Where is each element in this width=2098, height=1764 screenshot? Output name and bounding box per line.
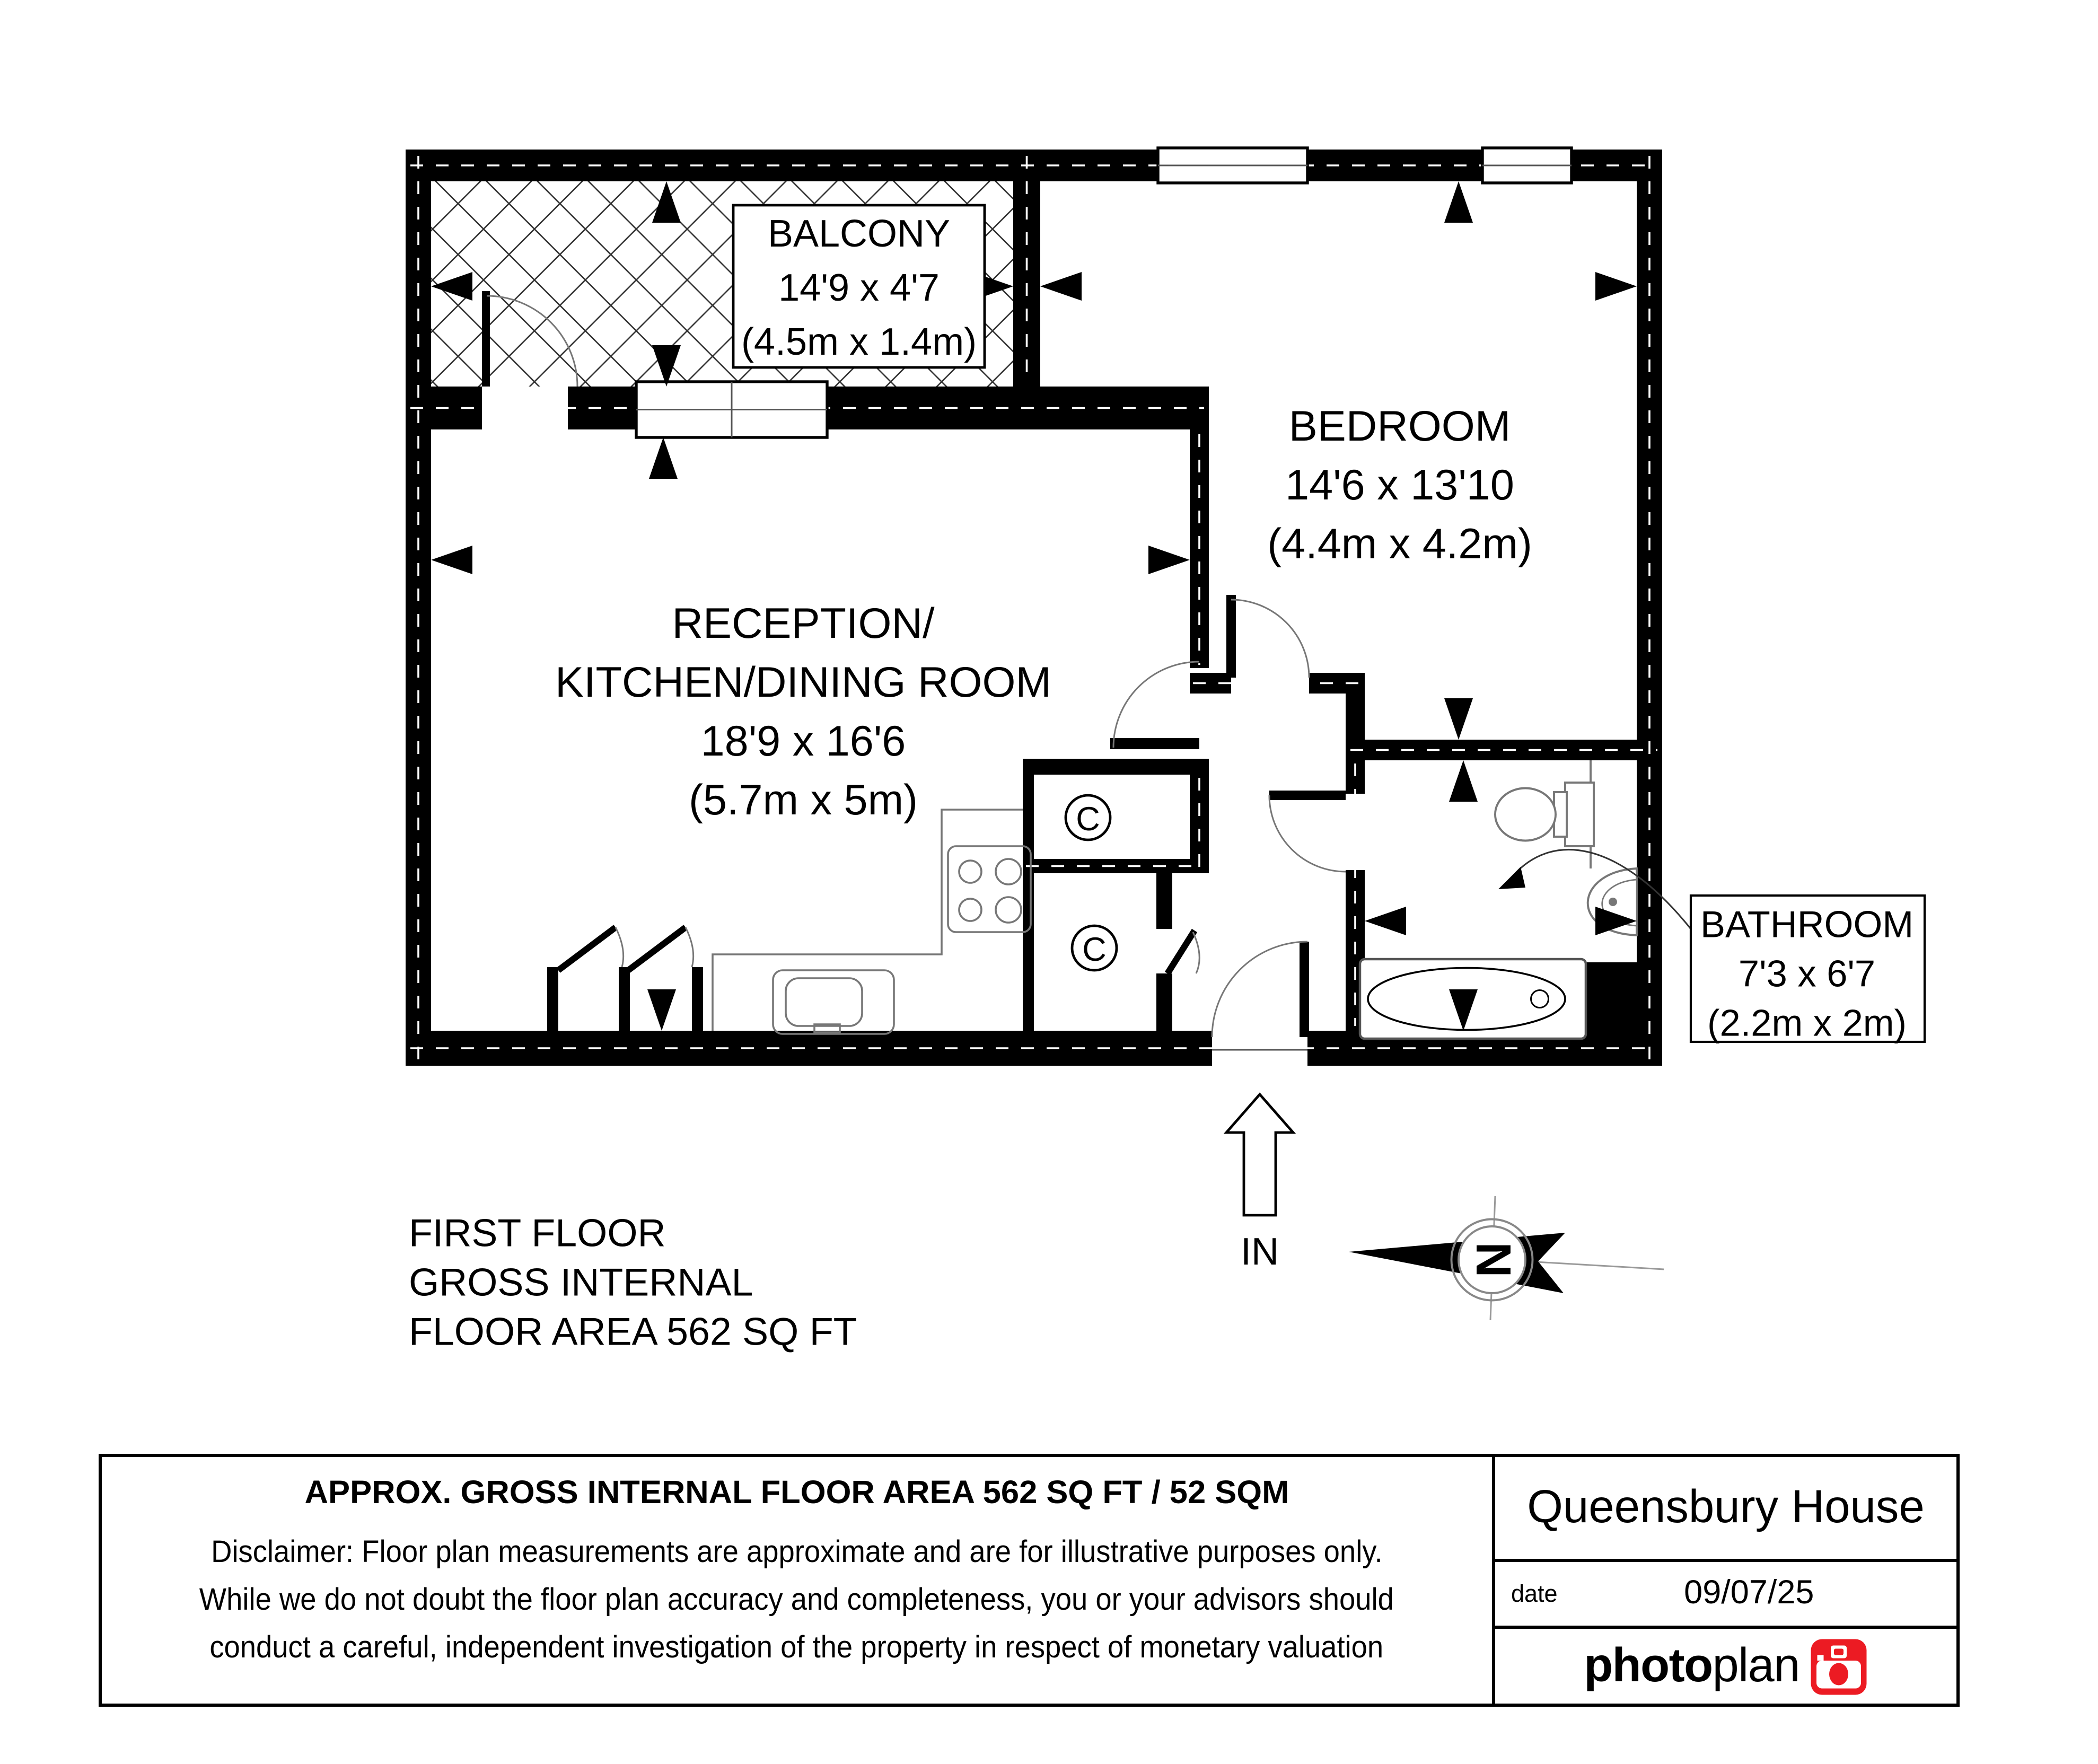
reception-dims: 18'9 x 16'6: [701, 717, 906, 765]
bathroom-corner-boxing: [1583, 962, 1637, 1031]
cupboard-door-arc-2: [686, 927, 694, 967]
entrance-door-leaf: [1300, 942, 1309, 1037]
arrow-reception-right: [1148, 546, 1190, 574]
brand-wordmark: photoplan: [1584, 1639, 1799, 1693]
floor-summary-line1: FIRST FLOOR: [409, 1211, 666, 1255]
closet2-wall-left: [1023, 873, 1034, 1031]
floor-summary: FIRST FLOOR GROSS INTERNAL FLOOR AREA 56…: [409, 1211, 857, 1354]
property-name: Queensbury House: [1527, 1482, 1925, 1534]
cupboard-stub-3: [692, 967, 703, 1031]
cupboard-stub-1: [547, 967, 558, 1031]
bedroom-door-arc: [1231, 600, 1309, 678]
kitchen: [713, 810, 1031, 1034]
toilet-cistern: [1565, 783, 1594, 846]
cupboard-stub-2: [619, 967, 630, 1031]
reception-metric: (5.7m x 5m): [689, 776, 918, 824]
footer-table: APPROX. GROSS INTERNAL FLOOR AREA 562 SQ…: [99, 1454, 1960, 1707]
bathroom-door-leaf: [1269, 791, 1346, 800]
entrance-label: IN: [1241, 1231, 1279, 1273]
disclaimer-line-1: Disclaimer: Floor plan measurements are …: [211, 1529, 1382, 1576]
arrow-bathroom-up: [1449, 760, 1478, 802]
closet2-label: C: [1082, 931, 1107, 968]
bathroom-dims: 7'3 x 6'7: [1739, 953, 1875, 995]
disclaimer-line-3: conduct a careful, independent investiga…: [210, 1624, 1384, 1672]
toilet-bowl: [1495, 788, 1556, 841]
closet2-wall-right-upper: [1156, 873, 1172, 929]
bath-drain: [1531, 990, 1549, 1008]
bathroom-door-arc: [1269, 795, 1346, 872]
entrance-marker: IN: [1226, 1094, 1293, 1273]
brand-word-light: plan: [1713, 1639, 1799, 1692]
brand-word-bold: photo: [1584, 1639, 1712, 1692]
reception-name-line2: KITCHEN/DINING ROOM: [555, 659, 1051, 706]
balcony-name: BALCONY: [768, 213, 950, 255]
floor-plan-page: C C BALCONY 14'9 x 4'7 (4.5m x 1.4m) BED…: [0, 0, 2098, 1763]
balcony-dims: 14'9 x 4'7: [778, 267, 940, 309]
reception-name-line1: RECEPTION/: [672, 600, 935, 647]
bedroom-door-leaf: [1226, 595, 1236, 678]
bedroom-metric: (4.4m x 4.2m): [1267, 520, 1532, 568]
date-row: date 09/07/25: [1495, 1562, 1956, 1629]
brand-row: photoplan: [1495, 1629, 1956, 1704]
in-arrow-icon: [1226, 1094, 1293, 1215]
floor-summary-line3: FLOOR AREA 562 SQ FT: [409, 1310, 857, 1354]
closet1-wall-top: [1023, 759, 1209, 775]
date-value: 09/07/25: [1558, 1575, 1941, 1613]
footer-property-panel: Queensbury House date 09/07/25 photoplan: [1492, 1457, 1956, 1704]
reception-door-leaf: [1110, 738, 1199, 749]
arrow-reception-up: [649, 437, 678, 479]
balcony-metric: (4.5m x 1.4m): [741, 321, 977, 363]
bathroom-sink-tap: [1610, 899, 1616, 905]
reception-door-arc: [1113, 662, 1199, 748]
compass-horizontal-line: [1527, 1261, 1664, 1269]
closet2-door-leaf: [1167, 931, 1195, 973]
arrow-bedroom-left: [1040, 272, 1082, 301]
gross-area-title: APPROX. GROSS INTERNAL FLOOR AREA 562 SQ…: [305, 1475, 1289, 1513]
bathroom-leader-arrowhead: [1498, 867, 1525, 889]
cupboard-door-leaf-2: [628, 927, 686, 970]
room-labels: BALCONY 14'9 x 4'7 (4.5m x 1.4m) BEDROOM…: [555, 205, 1925, 1044]
cupboard-door-leaf-1: [558, 927, 616, 970]
arrow-reception-left: [431, 546, 472, 574]
compass: N: [1349, 1196, 1664, 1320]
bathroom-metric: (2.2m x 2m): [1707, 1002, 1907, 1044]
disclaimer-line-2: While we do not doubt the floor plan acc…: [199, 1576, 1394, 1624]
bedroom-dims: 14'6 x 13'10: [1285, 461, 1514, 509]
wall-jog: [1346, 694, 1365, 740]
balcony-door-leaf: [482, 291, 490, 387]
closet2-door-arc: [1193, 932, 1199, 973]
bedroom-name: BEDROOM: [1289, 402, 1511, 450]
arrow-reception-down: [647, 989, 676, 1031]
property-name-row: Queensbury House: [1495, 1457, 1956, 1562]
floor-summary-line2: GROSS INTERNAL: [409, 1260, 753, 1304]
wall-bottom-left: [406, 1031, 1212, 1066]
date-label: date: [1511, 1581, 1558, 1608]
footer-area-panel: APPROX. GROSS INTERNAL FLOOR AREA 562 SQ…: [102, 1457, 1492, 1704]
arrow-bedroom-up: [1444, 181, 1473, 223]
arrow-bedroom-down: [1444, 698, 1473, 740]
compass-north-label: N: [1466, 1242, 1521, 1277]
brand-camera-icon: [1811, 1638, 1868, 1695]
closet-labels: C C: [1066, 795, 1117, 970]
bathroom-name: BATHROOM: [1700, 903, 1913, 945]
closet2-wall-right-lower: [1156, 973, 1172, 1031]
arrow-bedroom-right: [1595, 272, 1637, 301]
entrance-door-arc: [1212, 942, 1307, 1037]
closet1-label: C: [1076, 801, 1100, 838]
cupboard-door-arc-1: [616, 927, 624, 967]
arrow-bathroom-left: [1365, 907, 1406, 935]
kitchen-sink-bowl: [786, 978, 862, 1026]
